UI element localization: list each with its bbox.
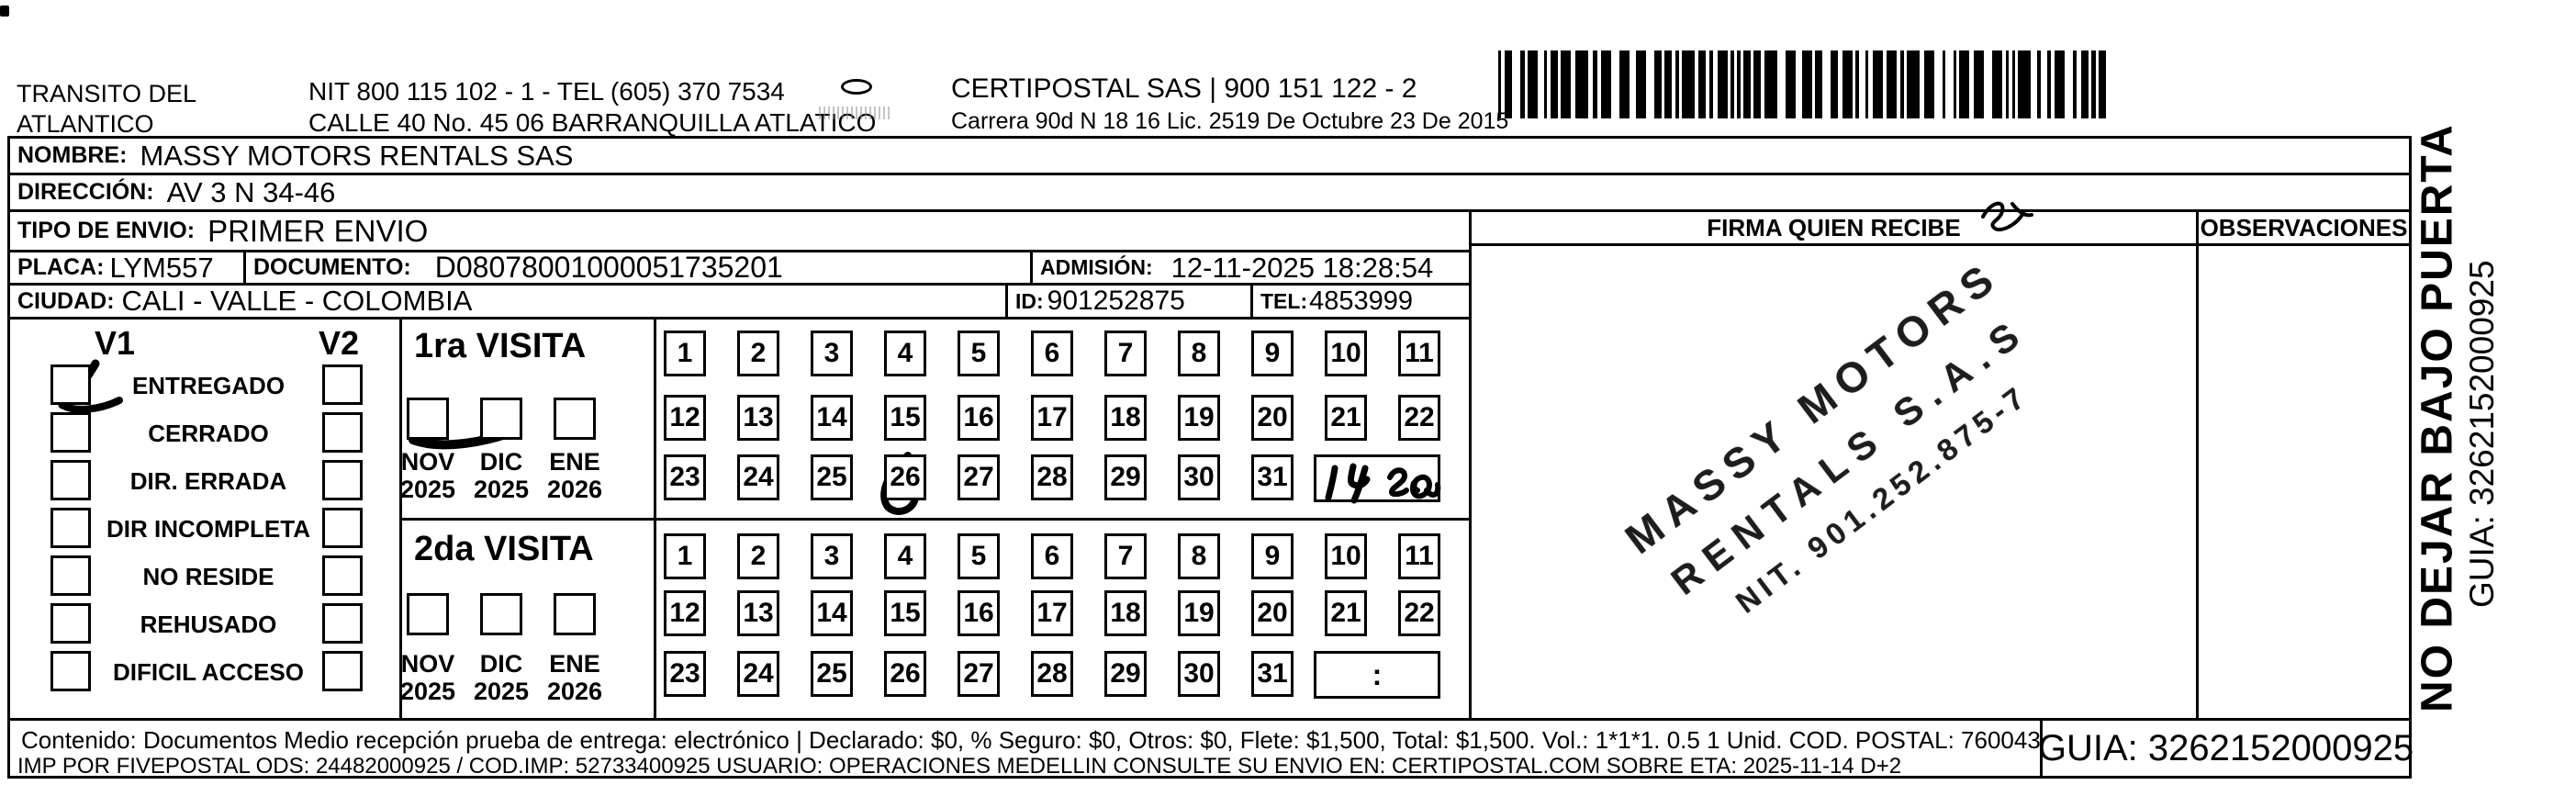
second-visit-time-placeholder: : xyxy=(1372,658,1383,691)
day-box-second-visit-7: 7 xyxy=(1104,533,1147,579)
first-visit-month-label: NOV xyxy=(386,448,469,476)
second-visit-month-label: DIC xyxy=(460,650,543,678)
carrier-logo-subtext xyxy=(819,107,892,119)
nombre-value: MASSY MOTORS RENTALS SAS xyxy=(140,140,573,173)
first-visit-time-box xyxy=(1314,454,1440,502)
day-box-first-visit-23: 23 xyxy=(664,454,706,500)
day-box-second-visit-4: 4 xyxy=(884,533,926,579)
placa-cell: PLACA: LYM557 xyxy=(7,250,246,286)
status-label-entregado: ENTREGADO xyxy=(98,372,319,400)
day-box-second-visit-15: 15 xyxy=(884,590,926,636)
tel-cell: TEL: 4853999 xyxy=(1250,283,1472,320)
checkbox-v1-entregado xyxy=(50,364,91,405)
day-box-second-visit-17: 17 xyxy=(1031,590,1073,636)
admision-value: 12-11-2025 18:28:54 xyxy=(1171,252,1434,285)
day-box-first-visit-18: 18 xyxy=(1104,395,1147,441)
footer-line-2: IMP POR FIVEPOSTAL ODS: 24482000925 / CO… xyxy=(17,754,1901,779)
day-box-first-visit-30: 30 xyxy=(1178,454,1220,500)
checkbox-v1-rehusado xyxy=(50,603,91,644)
second-visit-month-label: ENE xyxy=(533,650,616,678)
footer-cell: Contenido: Documentos Medio recepción pr… xyxy=(7,718,2043,779)
status-section: V1 V2 ENTREGADOCERRADODIR. ERRADADIR INC… xyxy=(7,317,402,721)
day-box-second-visit-1: 1 xyxy=(664,533,706,579)
side-warning-text: NO DEJAR BAJO PUERTA xyxy=(2413,147,2462,689)
day-box-second-visit-27: 27 xyxy=(958,651,1000,697)
checkbox-v2-dir-incompleta xyxy=(322,508,363,548)
day-box-first-visit-28: 28 xyxy=(1031,454,1073,500)
v1-header: V1 xyxy=(95,324,135,363)
status-label-rehusado: REHUSADO xyxy=(98,611,319,639)
placa-value: LYM557 xyxy=(109,252,213,285)
documento-value: D08078001000051735201 xyxy=(435,251,783,285)
checkbox-first-visit-month-ene-2026 xyxy=(554,398,596,440)
second-visit-day-grid: : 12345678910111213141516171819202122232… xyxy=(654,518,1472,721)
carrier-name: CERTIPOSTAL SAS | 900 151 122 - 2 xyxy=(951,73,1417,105)
nombre-label: NOMBRE: xyxy=(17,142,127,169)
id-cell: ID: 901252875 xyxy=(1005,283,1253,320)
carrier-license: Carrera 90d N 18 16 Lic. 2519 De Octubre… xyxy=(951,108,1508,135)
day-box-second-visit-6: 6 xyxy=(1031,533,1073,579)
day-box-second-visit-28: 28 xyxy=(1031,651,1073,697)
tel-label: TEL: xyxy=(1260,289,1307,314)
second-visit-time-box: : xyxy=(1314,651,1440,699)
day-box-first-visit-31: 31 xyxy=(1251,454,1294,500)
day-box-first-visit-15: 15 xyxy=(884,395,926,441)
day-box-first-visit-6: 6 xyxy=(1031,331,1073,376)
second-visit-month-label: NOV xyxy=(386,650,469,678)
status-label-dir-incompleta: DIR INCOMPLETA xyxy=(98,515,319,544)
documento-cell: DOCUMENTO: D08078001000051735201 xyxy=(243,250,1033,286)
sender-nit-tel: NIT 800 115 102 - 1 - TEL (605) 370 7534 xyxy=(308,77,785,107)
guia-number: GUIA: 3262152000925 xyxy=(2038,728,2414,769)
second-visit-month-year: 2026 xyxy=(533,678,616,706)
checkbox-v1-dir-incompleta xyxy=(50,508,91,548)
footer-line-1: Contenido: Documentos Medio recepción pr… xyxy=(21,726,2041,755)
direccion-row: DIRECCIÓN: AV 3 N 34-46 xyxy=(7,173,2412,212)
checkbox-v2-dificil-acceso xyxy=(322,651,363,691)
checkbox-v1-dir-errada xyxy=(50,460,91,500)
checkbox-v2-no-reside xyxy=(322,555,363,596)
day-box-second-visit-14: 14 xyxy=(811,590,853,636)
ciudad-cell: CIUDAD: CALI - VALLE - COLOMBIA xyxy=(7,283,1008,320)
day-box-first-visit-17: 17 xyxy=(1031,395,1073,441)
side-guia-text: GUIA: 3262152000925 xyxy=(2462,216,2503,652)
day-box-first-visit-4: 4 xyxy=(884,331,926,376)
sender-address: CALLE 40 No. 45 06 BARRANQUILLA ATLATICO xyxy=(308,108,876,138)
second-visit-section: 2da VISITA NOV2025DIC2025ENE2026 xyxy=(399,518,656,721)
day-box-first-visit-11: 11 xyxy=(1398,331,1440,376)
day-box-second-visit-9: 9 xyxy=(1251,533,1294,579)
checkbox-v2-rehusado xyxy=(322,603,363,644)
scan-artifact-dot xyxy=(0,6,9,17)
checkbox-second-visit-month-ene-2026 xyxy=(554,593,596,635)
id-label: ID: xyxy=(1015,289,1044,314)
day-box-second-visit-31: 31 xyxy=(1251,651,1294,697)
day-box-second-visit-18: 18 xyxy=(1104,590,1147,636)
day-box-second-visit-20: 20 xyxy=(1251,590,1294,636)
nombre-row: NOMBRE: MASSY MOTORS RENTALS SAS xyxy=(7,136,2412,175)
tel-value: 4853999 xyxy=(1309,286,1413,317)
day-box-second-visit-11: 11 xyxy=(1398,533,1440,579)
day-box-second-visit-19: 19 xyxy=(1178,590,1220,636)
second-visit-month-year: 2025 xyxy=(386,678,469,706)
tipo-envio-label: TIPO DE ENVIO: xyxy=(17,218,195,244)
checkbox-second-visit-month-dic-2025 xyxy=(480,593,522,635)
day-box-first-visit-1: 1 xyxy=(664,331,706,376)
first-visit-month-year: 2026 xyxy=(533,476,616,504)
day-box-second-visit-22: 22 xyxy=(1398,590,1440,636)
checkbox-first-visit-month-nov-2025 xyxy=(407,398,449,440)
checkbox-first-visit-month-dic-2025 xyxy=(480,398,522,440)
observaciones-label: OBSERVACIONES xyxy=(2201,214,2408,242)
day-box-first-visit-25: 25 xyxy=(811,454,853,500)
day-box-first-visit-19: 19 xyxy=(1178,395,1220,441)
tipo-envio-row: TIPO DE ENVIO: PRIMER ENVIO xyxy=(7,209,1472,252)
day-box-second-visit-24: 24 xyxy=(737,651,779,697)
first-visit-month-label: ENE xyxy=(533,448,616,476)
day-box-second-visit-13: 13 xyxy=(737,590,779,636)
tipo-envio-value: PRIMER ENVIO xyxy=(207,214,428,249)
handwritten-time xyxy=(1316,457,1443,505)
day-box-second-visit-2: 2 xyxy=(737,533,779,579)
status-label-no-reside: NO RESIDE xyxy=(98,563,319,591)
day-box-second-visit-10: 10 xyxy=(1325,533,1367,579)
day-box-first-visit-8: 8 xyxy=(1178,331,1220,376)
day-box-first-visit-24: 24 xyxy=(737,454,779,500)
day-box-first-visit-21: 21 xyxy=(1325,395,1367,441)
day-box-second-visit-3: 3 xyxy=(811,533,853,579)
day-box-second-visit-26: 26 xyxy=(884,651,926,697)
first-visit-section: 1ra VISITA NOV2025DIC2025ENE2026 xyxy=(399,317,656,521)
day-box-first-visit-3: 3 xyxy=(811,331,853,376)
day-box-first-visit-7: 7 xyxy=(1104,331,1147,376)
direccion-value: AV 3 N 34-46 xyxy=(167,176,336,209)
observaciones-header: OBSERVACIONES xyxy=(2196,209,2412,246)
status-label-dir-errada: DIR. ERRADA xyxy=(98,467,319,496)
day-box-second-visit-29: 29 xyxy=(1104,651,1147,697)
day-box-second-visit-16: 16 xyxy=(958,590,1000,636)
day-box-first-visit-2: 2 xyxy=(737,331,779,376)
day-box-first-visit-12: 12 xyxy=(664,395,706,441)
day-box-first-visit-20: 20 xyxy=(1251,395,1294,441)
checkbox-v2-cerrado xyxy=(322,412,363,453)
carrier-logo-icon xyxy=(841,79,872,95)
day-box-second-visit-5: 5 xyxy=(958,533,1000,579)
observaciones-area xyxy=(2196,243,2412,721)
placa-label: PLACA: xyxy=(17,254,104,281)
documento-label: DOCUMENTO: xyxy=(253,254,411,281)
first-visit-month-label: DIC xyxy=(460,448,543,476)
checkbox-v1-dificil-acceso xyxy=(50,651,91,691)
day-box-second-visit-30: 30 xyxy=(1178,651,1220,697)
day-box-first-visit-27: 27 xyxy=(958,454,1000,500)
day-box-first-visit-9: 9 xyxy=(1251,331,1294,376)
sender-name: TRANSITO DEL ATLANTICO xyxy=(17,79,196,140)
ciudad-label: CIUDAD: xyxy=(17,288,115,315)
barcode xyxy=(1498,50,2111,120)
first-visit-month-year: 2025 xyxy=(386,476,469,504)
day-box-first-visit-14: 14 xyxy=(811,395,853,441)
admision-cell: ADMISIÓN: 12-11-2025 18:28:54 xyxy=(1030,250,1472,286)
sender-name-line1: TRANSITO DEL xyxy=(17,79,196,109)
day-box-first-visit-29: 29 xyxy=(1104,454,1147,500)
day-box-first-visit-13: 13 xyxy=(737,395,779,441)
second-visit-title: 2da VISITA xyxy=(414,530,594,569)
checkbox-second-visit-month-nov-2025 xyxy=(407,593,449,635)
first-visit-day-grid: 1234567891011121314151617181920212223242… xyxy=(654,317,1472,521)
firma-header: FIRMA QUIEN RECIBE xyxy=(1469,209,2199,246)
day-box-first-visit-5: 5 xyxy=(958,331,1000,376)
checkbox-v1-cerrado xyxy=(50,412,91,453)
day-box-second-visit-21: 21 xyxy=(1325,590,1367,636)
day-box-second-visit-23: 23 xyxy=(664,651,706,697)
first-visit-month-year: 2025 xyxy=(460,476,543,504)
v2-header: V2 xyxy=(319,324,359,363)
day-box-first-visit-26: 26 xyxy=(884,454,926,500)
id-value: 901252875 xyxy=(1047,286,1185,317)
day-box-first-visit-10: 10 xyxy=(1325,331,1367,376)
first-visit-title: 1ra VISITA xyxy=(414,327,586,366)
checkbox-v1-no-reside xyxy=(50,555,91,596)
status-label-cerrado: CERRADO xyxy=(98,420,319,448)
status-label-dificil-acceso: DIFICIL ACCESO xyxy=(98,658,319,687)
day-box-first-visit-22: 22 xyxy=(1398,395,1440,441)
admision-label: ADMISIÓN: xyxy=(1040,255,1153,280)
day-box-first-visit-16: 16 xyxy=(958,395,1000,441)
direccion-label: DIRECCIÓN: xyxy=(17,179,154,206)
waybill-scan: TRANSITO DEL ATLANTICO NIT 800 115 102 -… xyxy=(0,0,2576,796)
day-box-second-visit-25: 25 xyxy=(811,651,853,697)
day-box-second-visit-12: 12 xyxy=(664,590,706,636)
ciudad-value: CALI - VALLE - COLOMBIA xyxy=(122,285,473,318)
guia-cell: GUIA: 3262152000925 xyxy=(2040,718,2412,779)
day-box-second-visit-8: 8 xyxy=(1178,533,1220,579)
checkbox-v2-dir-errada xyxy=(322,460,363,500)
checkbox-v2-entregado xyxy=(322,364,363,405)
second-visit-month-year: 2025 xyxy=(460,678,543,706)
